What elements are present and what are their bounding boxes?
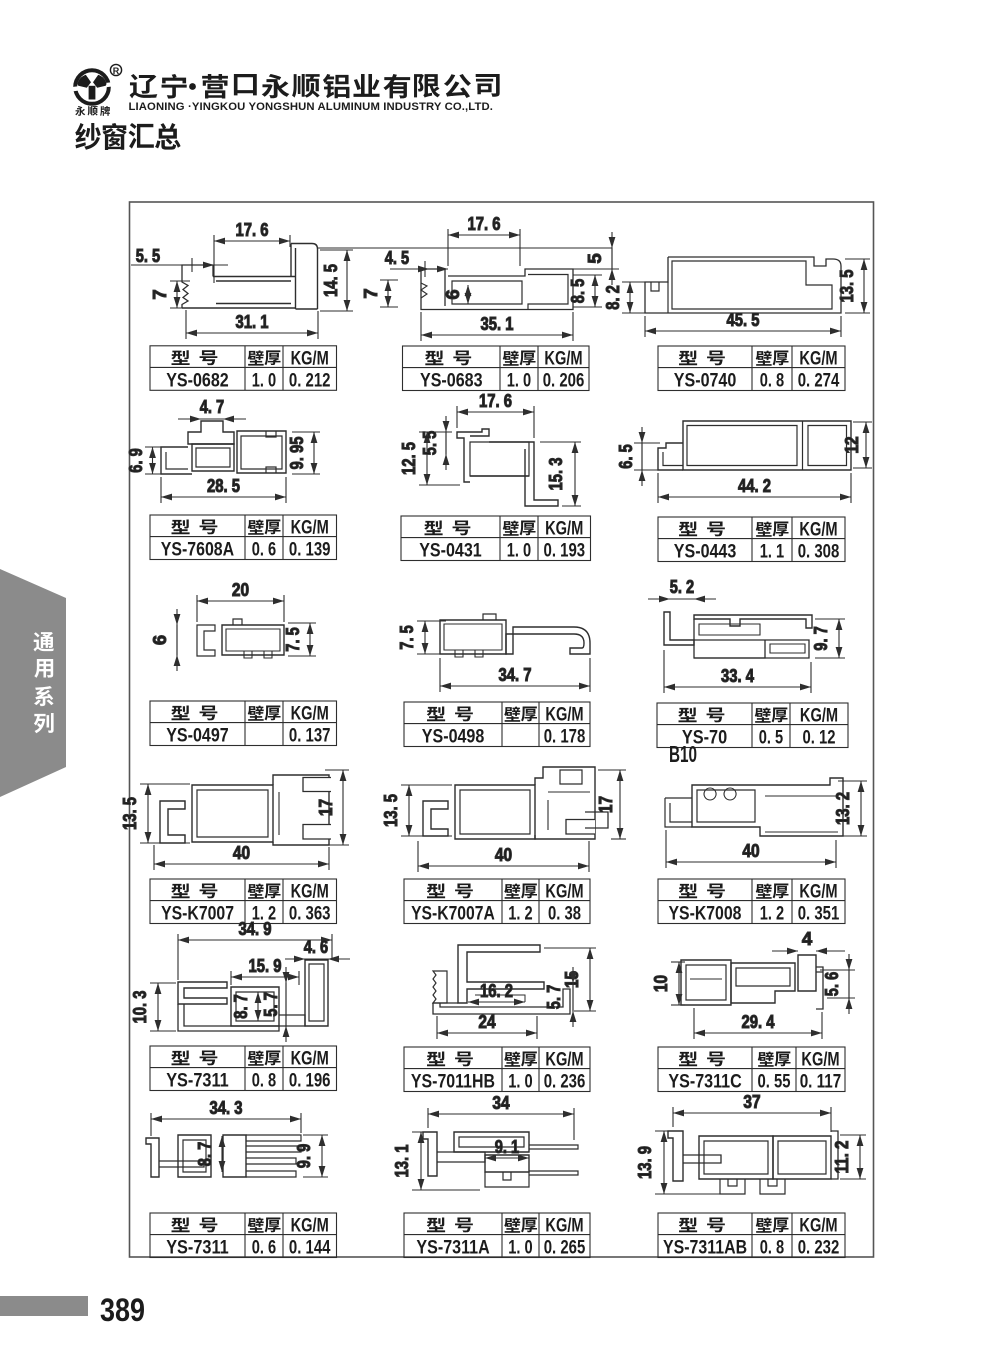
- svg-text:KG/M: KG/M: [291, 517, 329, 539]
- svg-text:KG/M: KG/M: [545, 704, 583, 726]
- svg-text:0. 38: 0. 38: [548, 903, 581, 925]
- svg-text:YS-7311C: YS-7311C: [668, 1071, 741, 1093]
- svg-text:24: 24: [478, 1011, 496, 1032]
- svg-text:YS-7311: YS-7311: [166, 1070, 229, 1092]
- svg-text:YS-K7007A: YS-K7007A: [411, 903, 495, 925]
- svg-text:12. 5: 12. 5: [398, 442, 419, 475]
- svg-text:YS-K7007: YS-K7007: [161, 903, 234, 925]
- svg-text:33. 4: 33. 4: [721, 665, 755, 686]
- svg-text:34. 9: 34. 9: [239, 918, 272, 939]
- svg-text:17: 17: [315, 799, 336, 816]
- svg-text:5. 7: 5. 7: [543, 985, 564, 1009]
- svg-text:4. 6: 4. 6: [304, 936, 328, 957]
- svg-text:KG/M: KG/M: [799, 881, 837, 903]
- svg-text:8. 7: 8. 7: [194, 1142, 215, 1166]
- svg-text:29. 4: 29. 4: [742, 1011, 776, 1032]
- svg-text:31. 1: 31. 1: [236, 311, 269, 332]
- svg-text:9. 1: 9. 1: [495, 1136, 519, 1157]
- svg-text:34: 34: [492, 1092, 510, 1113]
- svg-text:0. 55: 0. 55: [758, 1071, 791, 1093]
- svg-text:1. 0: 1. 0: [252, 369, 277, 391]
- svg-text:0. 8: 0. 8: [252, 1070, 277, 1092]
- svg-text:40: 40: [233, 842, 250, 863]
- svg-text:5. 6: 5. 6: [821, 972, 842, 996]
- svg-text:0. 193: 0. 193: [544, 540, 586, 562]
- svg-text:34. 7: 34. 7: [499, 664, 532, 685]
- svg-text:YS-7311A: YS-7311A: [416, 1237, 489, 1259]
- svg-text:13. 5: 13. 5: [380, 794, 401, 827]
- svg-text:KG/M: KG/M: [291, 348, 329, 370]
- svg-text:YS-0497: YS-0497: [166, 725, 229, 747]
- svg-text:20: 20: [232, 579, 249, 600]
- svg-text:0. 139: 0. 139: [289, 539, 331, 561]
- svg-text:5. 7: 5. 7: [260, 992, 281, 1016]
- svg-text:4. 7: 4. 7: [200, 396, 224, 417]
- svg-text:34. 3: 34. 3: [210, 1097, 243, 1118]
- svg-text:8. 5: 8. 5: [567, 279, 588, 303]
- svg-text:YS-0740: YS-0740: [674, 370, 737, 392]
- svg-text:40: 40: [495, 844, 512, 865]
- svg-text:9. 7: 9. 7: [810, 626, 831, 650]
- svg-text:KG/M: KG/M: [545, 518, 583, 540]
- svg-text:5: 5: [584, 253, 605, 263]
- svg-text:LIAONING ·YINGKOU YONGSHUN ALU: LIAONING ·YINGKOU YONGSHUN ALUMINUM INDU…: [129, 101, 494, 113]
- svg-text:0. 206: 0. 206: [543, 370, 585, 392]
- svg-text:11. 2: 11. 2: [831, 1141, 852, 1174]
- svg-text:1. 0: 1. 0: [508, 1237, 533, 1259]
- svg-text:0. 144: 0. 144: [289, 1237, 331, 1259]
- svg-text:44. 2: 44. 2: [738, 475, 771, 496]
- svg-text:7: 7: [360, 288, 381, 298]
- svg-text:13. 1: 13. 1: [391, 1145, 412, 1178]
- svg-text:0. 212: 0. 212: [289, 369, 331, 391]
- svg-text:10: 10: [650, 975, 671, 992]
- svg-text:0. 196: 0. 196: [289, 1070, 331, 1092]
- svg-text:5. 5: 5. 5: [419, 431, 440, 455]
- svg-text:9. 95: 9. 95: [286, 437, 307, 470]
- svg-text:YS-7011HB: YS-7011HB: [411, 1071, 495, 1093]
- svg-text:6. 5: 6. 5: [615, 444, 636, 468]
- svg-text:8. 7: 8. 7: [230, 994, 251, 1018]
- svg-text:4: 4: [802, 928, 813, 949]
- svg-text:6: 6: [149, 635, 170, 645]
- svg-text:YS-0683: YS-0683: [420, 370, 483, 392]
- svg-text:13. 5: 13. 5: [836, 270, 857, 303]
- svg-text:1. 0: 1. 0: [508, 1071, 533, 1093]
- svg-text:YS-7311: YS-7311: [166, 1237, 229, 1259]
- svg-text:4. 5: 4. 5: [385, 247, 409, 268]
- svg-text:28. 5: 28. 5: [207, 475, 240, 496]
- svg-text:37: 37: [743, 1091, 760, 1112]
- svg-text:5. 2: 5. 2: [670, 576, 694, 597]
- svg-text:12: 12: [841, 436, 862, 453]
- svg-text:YS-K7008: YS-K7008: [669, 903, 742, 925]
- svg-text:15. 3: 15. 3: [545, 458, 566, 491]
- svg-text:16. 2: 16. 2: [480, 980, 513, 1001]
- svg-text:KG/M: KG/M: [799, 1215, 837, 1237]
- svg-text:0. 236: 0. 236: [544, 1071, 586, 1093]
- svg-text:6: 6: [442, 289, 463, 299]
- svg-text:KG/M: KG/M: [545, 1049, 583, 1071]
- svg-text:7. 5: 7. 5: [282, 627, 303, 651]
- svg-text:0. 8: 0. 8: [760, 370, 785, 392]
- svg-text:0. 274: 0. 274: [798, 370, 840, 392]
- svg-text:KG/M: KG/M: [545, 881, 583, 903]
- svg-text:KG/M: KG/M: [291, 881, 329, 903]
- svg-text:KG/M: KG/M: [799, 348, 837, 370]
- svg-text:KG/M: KG/M: [544, 348, 582, 370]
- svg-text:9. 9: 9. 9: [293, 1144, 314, 1168]
- svg-text:389: 389: [100, 1292, 145, 1328]
- svg-text:YS-7311AB: YS-7311AB: [663, 1237, 747, 1259]
- svg-text:6. 9: 6. 9: [125, 448, 146, 472]
- svg-text:YS-0443: YS-0443: [674, 541, 737, 563]
- svg-text:0. 137: 0. 137: [289, 725, 331, 747]
- svg-text:0. 308: 0. 308: [798, 541, 840, 563]
- svg-text:0. 6: 0. 6: [252, 539, 277, 561]
- svg-text:15. 9: 15. 9: [249, 955, 282, 976]
- svg-text:1. 0: 1. 0: [507, 540, 532, 562]
- svg-text:YS-7608A: YS-7608A: [161, 539, 234, 561]
- svg-text:YS-0498: YS-0498: [422, 726, 485, 748]
- svg-text:1. 1: 1. 1: [760, 541, 785, 563]
- svg-text:KG/M: KG/M: [545, 1215, 583, 1237]
- svg-text:0. 12: 0. 12: [803, 727, 836, 749]
- svg-text:0. 5: 0. 5: [759, 727, 784, 749]
- svg-text:1. 2: 1. 2: [508, 903, 533, 925]
- svg-text:0. 265: 0. 265: [544, 1237, 586, 1259]
- svg-text:0. 232: 0. 232: [798, 1237, 840, 1259]
- svg-text:1. 0: 1. 0: [507, 370, 532, 392]
- svg-text:KG/M: KG/M: [801, 1049, 839, 1071]
- svg-text:YS-0431: YS-0431: [419, 540, 482, 562]
- svg-text:10. 3: 10. 3: [129, 991, 150, 1024]
- svg-text:40: 40: [742, 840, 759, 861]
- svg-text:45. 5: 45. 5: [727, 309, 760, 330]
- svg-text:13. 5: 13. 5: [119, 797, 140, 830]
- svg-text:17. 6: 17. 6: [468, 213, 501, 234]
- svg-text:0. 6: 0. 6: [252, 1237, 277, 1259]
- svg-text:8. 2: 8. 2: [602, 285, 623, 309]
- svg-text:7: 7: [149, 289, 170, 299]
- svg-text:KG/M: KG/M: [291, 703, 329, 725]
- svg-text:0. 8: 0. 8: [760, 1237, 785, 1259]
- svg-text:13. 9: 13. 9: [634, 1146, 655, 1179]
- svg-text:0. 117: 0. 117: [800, 1071, 842, 1093]
- svg-text:KG/M: KG/M: [291, 1215, 329, 1237]
- svg-text:KG/M: KG/M: [799, 519, 837, 541]
- svg-text:13. 2: 13. 2: [832, 792, 853, 825]
- svg-text:7. 5: 7. 5: [396, 625, 417, 649]
- svg-text:14. 5: 14. 5: [320, 264, 341, 297]
- svg-text:5. 5: 5. 5: [136, 245, 160, 266]
- svg-text:1. 2: 1. 2: [760, 903, 785, 925]
- svg-text:0. 351: 0. 351: [798, 903, 840, 925]
- svg-text:R: R: [113, 66, 120, 76]
- svg-text:17: 17: [595, 796, 616, 813]
- svg-text:KG/M: KG/M: [800, 705, 838, 727]
- svg-text:KG/M: KG/M: [291, 1048, 329, 1070]
- svg-text:35. 1: 35. 1: [481, 313, 514, 334]
- svg-text:YS-0682: YS-0682: [166, 369, 229, 391]
- svg-text:B10: B10: [669, 741, 697, 767]
- svg-text:17. 6: 17. 6: [236, 219, 269, 240]
- svg-text:0. 178: 0. 178: [544, 726, 586, 748]
- svg-text:0. 363: 0. 363: [289, 903, 331, 925]
- svg-text:17. 6: 17. 6: [479, 390, 512, 411]
